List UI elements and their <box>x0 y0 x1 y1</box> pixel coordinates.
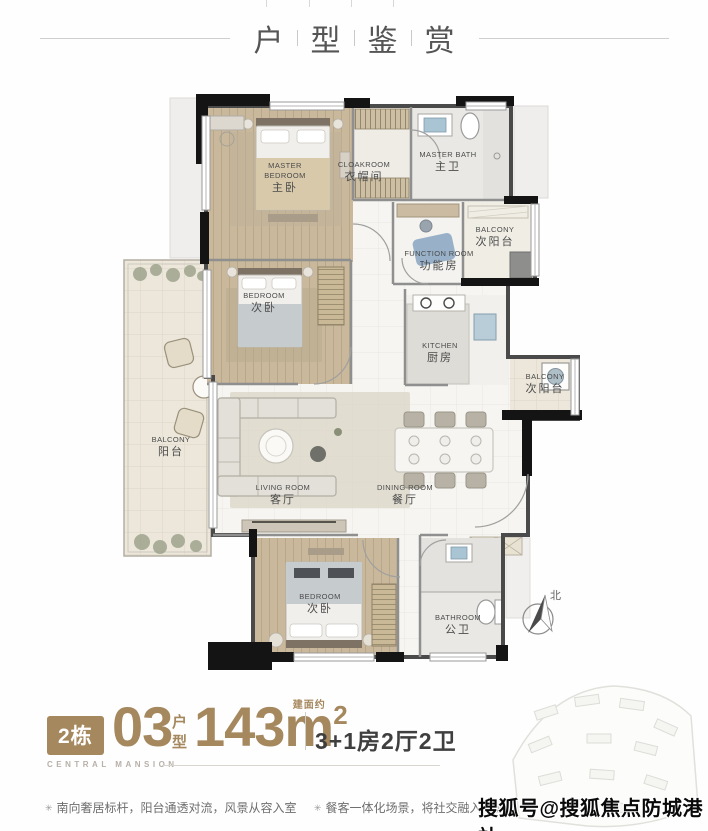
headboard <box>286 640 362 648</box>
note-marker: ✳ <box>45 803 53 813</box>
cloakroom <box>353 107 411 200</box>
top-tick <box>266 0 267 7</box>
desk <box>397 204 459 217</box>
dining-table <box>395 428 493 472</box>
nightstand <box>303 267 313 277</box>
headboard <box>238 268 302 275</box>
appliance <box>510 252 532 278</box>
room-label-function-room: FUNCTION ROOM功能房 <box>404 249 473 273</box>
kitchen-sink <box>474 314 496 340</box>
bench <box>308 548 344 555</box>
sink <box>451 547 467 559</box>
page-header: 户 型 鉴 赏 <box>0 16 708 60</box>
building-badge: 2栋 <box>47 716 104 755</box>
room-label-bedroom-bottom: BEDROOM次卧 <box>299 592 341 616</box>
room-label-cloakroom: CLOAKROOM衣帽间 <box>338 160 390 184</box>
brand-name: CENTRAL MANSION <box>47 760 178 769</box>
top-tick <box>309 0 310 7</box>
plant <box>334 428 342 436</box>
runner <box>328 568 354 578</box>
info-divider <box>305 712 306 750</box>
accent-stool <box>310 446 326 462</box>
headboard <box>256 118 330 126</box>
note-item: ✳南向奢居标杆，阳台通透对流，风景从容入室 <box>45 801 297 815</box>
wardrobe <box>318 267 344 325</box>
title-char: 型 <box>311 16 341 60</box>
room-label-balcony-right: BALCONY次阳台 <box>526 372 565 396</box>
title-char: 户 <box>254 16 284 60</box>
title-separator <box>411 30 412 46</box>
area-superscript: 2 <box>333 700 347 730</box>
dining-room-furniture <box>395 412 493 488</box>
room-label-living-room: LIVING ROOM客厅 <box>256 483 310 507</box>
title-char: 赏 <box>425 16 455 60</box>
title-separator <box>354 30 355 46</box>
room-label-bathroom: BATHROOM公卫 <box>435 613 481 637</box>
wardrobe <box>372 584 396 646</box>
unit-area: 建面约143m2 <box>194 699 348 755</box>
bathroom-bottom <box>420 538 503 656</box>
dresser <box>210 116 244 130</box>
compass-label: 北 <box>550 589 561 602</box>
page: 户 型 鉴 赏 <box>0 0 708 831</box>
bench <box>268 214 318 222</box>
room-label-master-bedroom: MASTER BEDROOM主卧 <box>254 161 316 195</box>
room-label-balcony-top-right: BALCONY次阳台 <box>476 225 515 249</box>
room-label-master-bath: MASTER BATH主卫 <box>419 150 476 174</box>
coffee-table <box>259 429 293 463</box>
unit-type-label: 户型 <box>172 713 187 752</box>
toilet <box>461 113 479 139</box>
area-value: 143m <box>194 695 333 758</box>
area-prefix: 建面约 <box>293 696 326 711</box>
title-separator <box>297 30 298 46</box>
watermark: 搜狐号@搜狐焦点防城港站 <box>478 792 708 831</box>
sink <box>424 118 446 132</box>
room-label-kitchen: KITCHEN厨房 <box>422 341 458 365</box>
top-tick <box>393 0 394 7</box>
title-line-left <box>40 38 230 39</box>
room-label-balcony-left: BALCONY阳台 <box>152 435 191 459</box>
desk-chair <box>420 220 432 232</box>
note-marker: ✳ <box>314 803 322 813</box>
unit-number: 03 <box>112 699 172 755</box>
page-title: 户 型 鉴 赏 <box>254 16 455 60</box>
nightstand <box>333 119 343 129</box>
nightstand <box>227 267 237 277</box>
room-label-bedroom-middle: BEDROOM次卧 <box>243 291 285 315</box>
balcony-left <box>124 260 215 556</box>
title-line-right <box>479 38 669 39</box>
top-tick <box>351 0 352 7</box>
note-text: 南向奢居标杆，阳台通透对流，风景从容入室 <box>57 801 297 815</box>
room-label-dining-room: DINING ROOM餐厅 <box>377 483 433 507</box>
brand-underline <box>162 765 440 766</box>
layout-text: 3+1房2厅2卫 <box>315 722 457 756</box>
title-char: 鉴 <box>368 16 398 60</box>
runner <box>294 568 320 578</box>
floor-plan: 北 MASTER BEDROOM主卧 CLOAKROOM衣帽间 MASTER B… <box>118 92 592 692</box>
